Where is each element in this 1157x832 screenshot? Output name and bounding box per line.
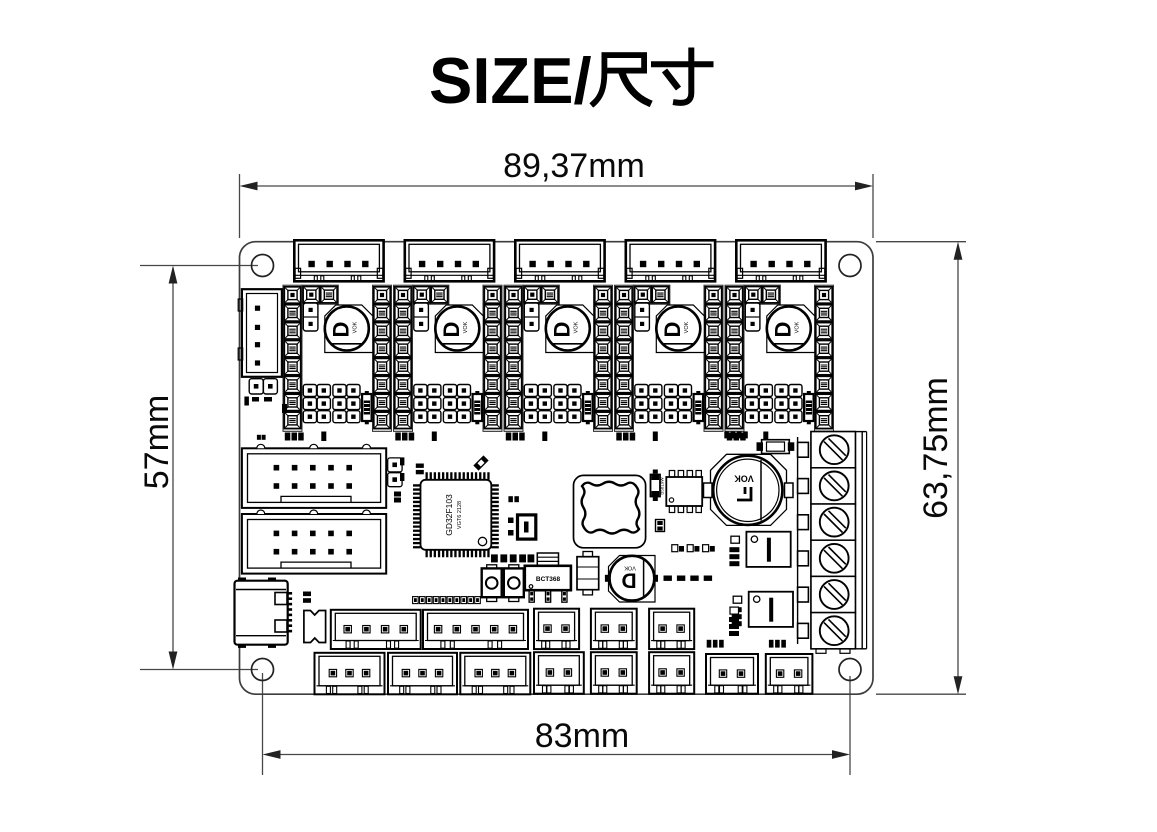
svg-text:D: D: [329, 322, 354, 338]
svg-text:83mm: 83mm: [535, 717, 629, 755]
svg-text:VOK: VOK: [352, 321, 358, 333]
svg-text:VOK: VOK: [573, 321, 579, 333]
svg-text:D: D: [771, 322, 796, 338]
svg-text:D: D: [660, 322, 685, 338]
svg-text:57mm: 57mm: [138, 395, 176, 489]
svg-text:VOK: VOK: [624, 565, 636, 571]
svg-text:63,75mm: 63,75mm: [917, 377, 955, 519]
svg-text:B5819W: B5819W: [660, 477, 665, 495]
svg-text:D: D: [550, 322, 575, 338]
svg-text:GD32F103: GD32F103: [444, 494, 454, 536]
svg-text:VOK: VOK: [684, 321, 690, 333]
svg-text:VGT6 2128: VGT6 2128: [457, 501, 463, 529]
svg-text:89,37mm: 89,37mm: [503, 147, 645, 185]
svg-text:D: D: [439, 322, 464, 338]
svg-text:BCT368: BCT368: [536, 576, 561, 583]
svg-text:VOK: VOK: [463, 321, 469, 333]
svg-text:SIZE/: SIZE/: [429, 44, 592, 117]
svg-text:D: D: [621, 568, 636, 591]
svg-text:VOK: VOK: [794, 321, 800, 333]
svg-text:VOK: VOK: [734, 474, 754, 484]
